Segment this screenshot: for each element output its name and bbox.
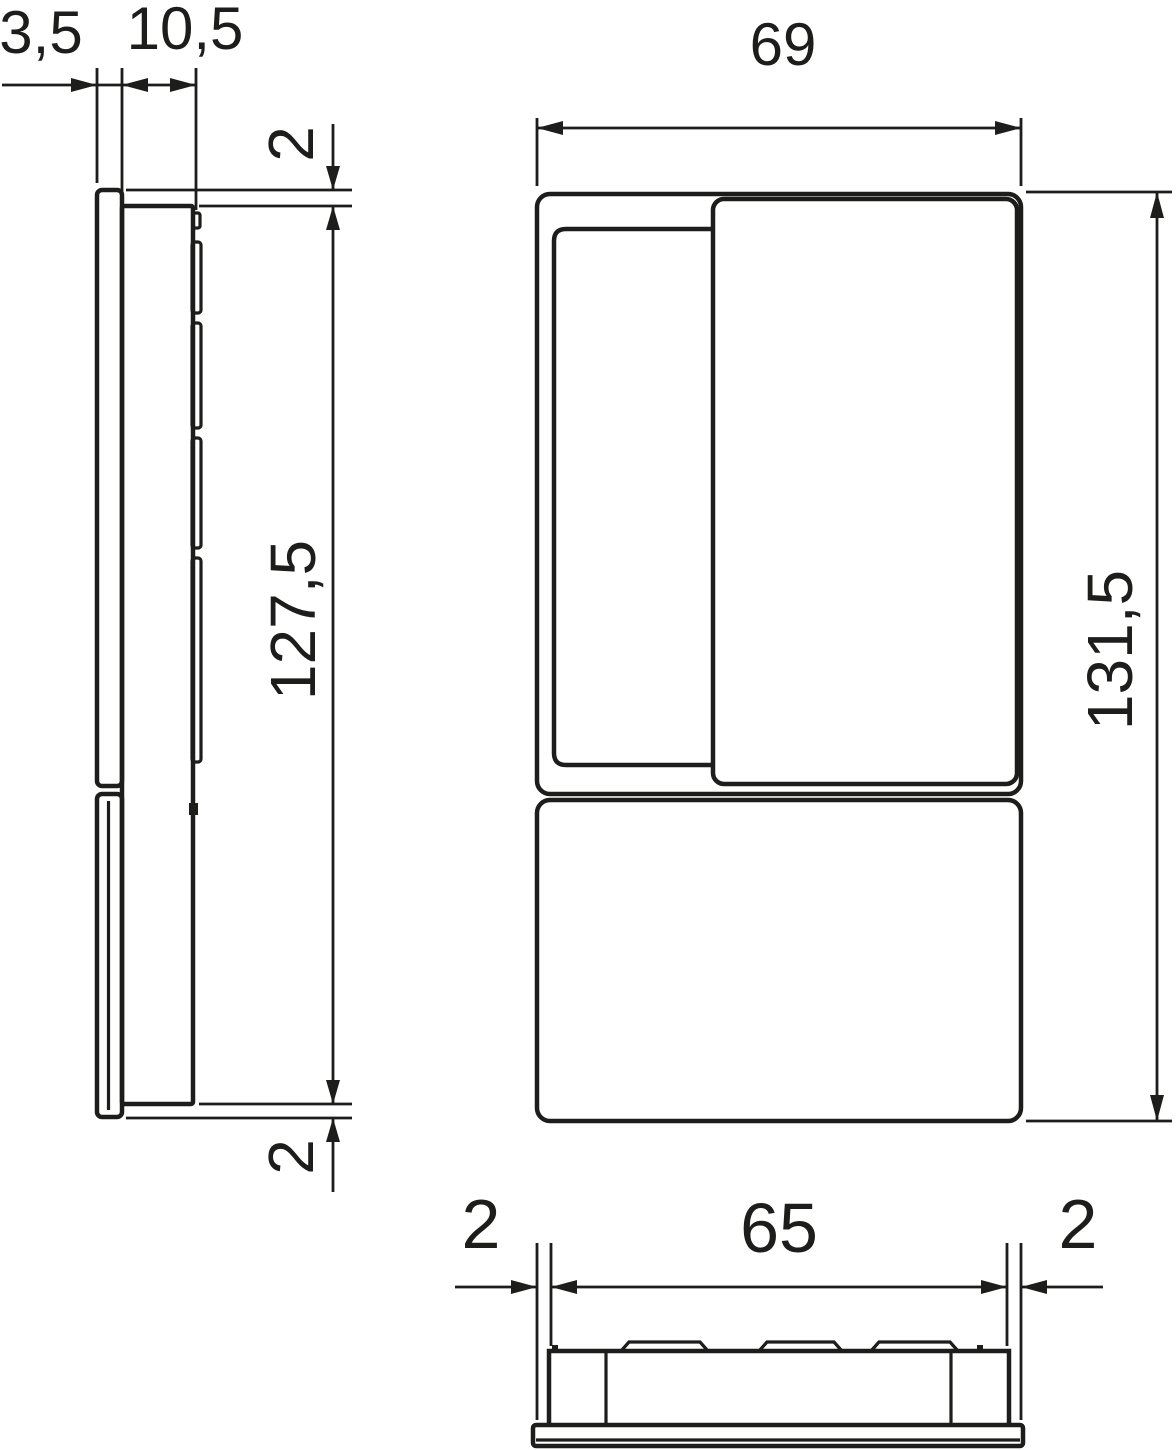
side-button-profile-1 (192, 242, 201, 313)
front-large-rocker (713, 199, 1017, 784)
bottom-nub-right (977, 1345, 983, 1351)
dim-label-top-inset: 2 (259, 126, 323, 162)
dim-label-overall-height: 131,5 (1078, 570, 1142, 730)
dim-label-body-depth: 10,5 (127, 0, 244, 59)
front-upper-section (537, 194, 1021, 794)
dim-label-body-height: 127,5 (261, 540, 325, 700)
dim-label-bottom-body-width: 65 (740, 1193, 818, 1263)
bottom-module-body (549, 1351, 1009, 1424)
dim-label-front-width: 69 (750, 15, 817, 75)
side-latch-nub (189, 803, 198, 815)
front-view (537, 194, 1021, 1121)
front-small-button (554, 229, 713, 765)
bottom-base-plate (533, 1425, 1023, 1446)
bottom-nub-left (552, 1345, 558, 1351)
side-button-step (193, 213, 200, 228)
side-button-profile-3 (192, 438, 201, 548)
dim-label-bottom-right-margin: 2 (1059, 1189, 1098, 1259)
technical-drawing-canvas: 3,5 10,5 69 2 127,5 131,5 2 2 65 2 (0, 0, 1176, 1450)
side-view (97, 190, 201, 1117)
technical-drawing (0, 0, 1176, 1450)
dim-label-plate-thickness: 3,5 (0, 3, 83, 63)
bottom-view (533, 1342, 1023, 1446)
side-button-profile-4 (192, 558, 201, 762)
dimension-lines (2, 68, 1172, 1420)
dim-label-bottom-left-margin: 2 (462, 1189, 501, 1259)
front-bottom-rocker (537, 800, 1021, 1121)
side-button-profile-2 (192, 323, 201, 428)
side-wall-plate-upper (97, 190, 122, 786)
dim-label-bottom-inset: 2 (259, 1139, 323, 1175)
side-body (122, 206, 193, 1104)
